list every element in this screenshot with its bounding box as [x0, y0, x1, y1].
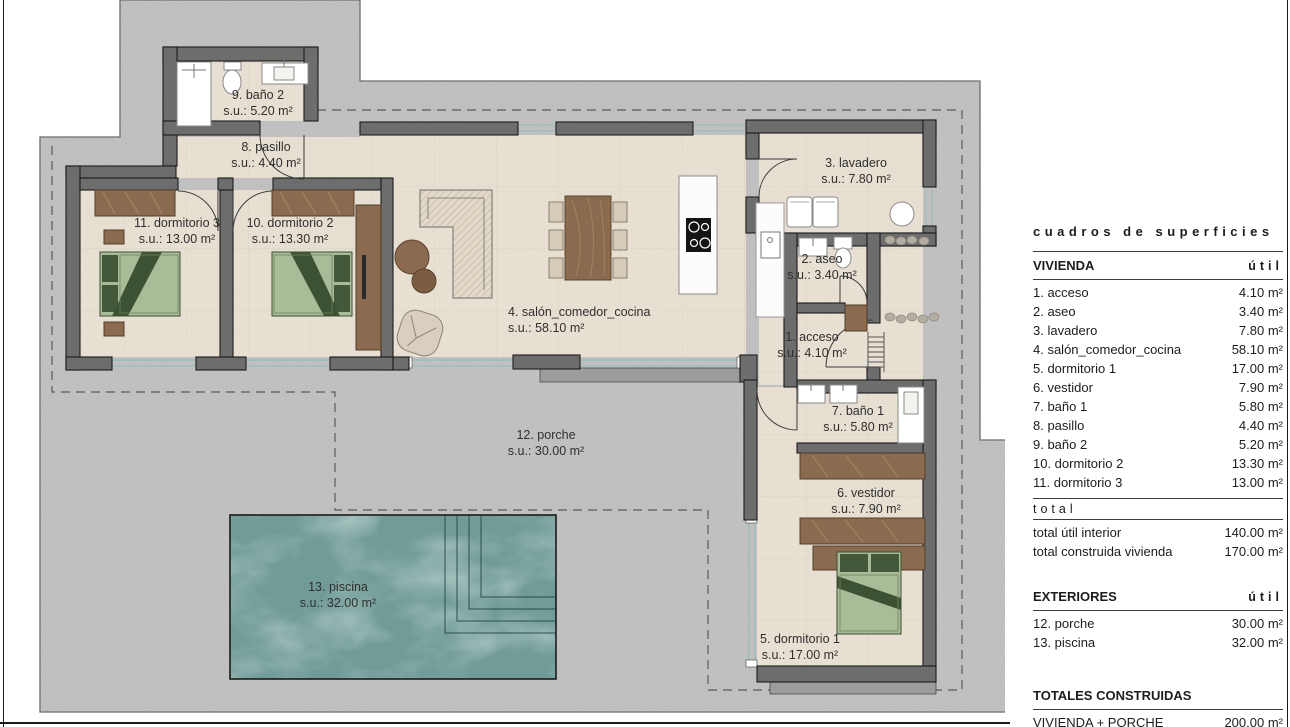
- table-row: 10. dormitorio 213.30 m²: [1033, 456, 1283, 475]
- toilet-tank-icon: [834, 237, 852, 249]
- toilet-tank-icon: [224, 62, 241, 70]
- vivienda-rows: 1. acceso4.10 m² 2. aseo3.40 m² 3. lavad…: [1033, 285, 1283, 494]
- dining-set-icon: [549, 196, 627, 280]
- util-header: útil: [1248, 590, 1283, 604]
- table-row: 7. baño 15.80 m²: [1033, 399, 1283, 418]
- cabinet-icon: [845, 305, 867, 331]
- exteriores-header: EXTERIORES: [1033, 589, 1117, 604]
- table-row: VIVIENDA + PORCHE200.00 m²: [1033, 715, 1283, 727]
- sheet-border-right: [1287, 0, 1288, 727]
- table-row: 12. porche30.00 m²: [1033, 616, 1283, 635]
- table-row: 11. dormitorio 313.00 m²: [1033, 475, 1283, 494]
- floor-plan-drawing: [0, 0, 1005, 727]
- sheet-border-bottom: [0, 722, 1010, 724]
- bed-icon: [272, 252, 352, 316]
- table-row: 8. pasillo4.40 m²: [1033, 418, 1283, 437]
- table-row: total construida vivienda170.00 m²: [1033, 544, 1283, 563]
- table-row: 6. vestidor7.90 m²: [1033, 380, 1283, 399]
- table-row: 2. aseo3.40 m²: [1033, 304, 1283, 323]
- wardrobe-icon: [95, 190, 175, 216]
- util-header: útil: [1248, 259, 1283, 273]
- exteriores-header-row: EXTERIORES útil: [1033, 589, 1283, 611]
- sheet-border-left: [3, 0, 4, 727]
- porch-step: [540, 368, 756, 382]
- floor-plan-sheet: 9. baño 2 s.u.: 5.20 m² 8. pasillo s.u.:…: [0, 0, 1290, 727]
- totales-section: TOTALES CONSTRUIDAS VIVIENDA + PORCHE200…: [1033, 688, 1283, 727]
- bed-icon: [100, 252, 180, 316]
- porch-step-2: [770, 682, 936, 694]
- table-row: 4. salón_comedor_cocina58.10 m²: [1033, 342, 1283, 361]
- vivienda-header: VIVIENDA: [1033, 258, 1094, 273]
- basin-icon: [890, 202, 914, 226]
- divider: [1033, 251, 1283, 252]
- table-row: total útil interior140.00 m²: [1033, 525, 1283, 544]
- pool: [230, 515, 556, 679]
- toilet-icon: [835, 248, 851, 268]
- kitchen-counter-icon: [756, 203, 784, 317]
- kitchen-sink-icon: [761, 232, 780, 258]
- total-header: total: [1033, 498, 1283, 520]
- wardrobe-icon: [356, 205, 381, 350]
- bedroom3-furniture: [95, 190, 180, 336]
- nightstand-icon: [104, 230, 124, 244]
- wardrobe-icon: [272, 190, 354, 216]
- bed-icon: [837, 552, 901, 634]
- wardrobe-icon: [800, 518, 925, 544]
- exteriores-section: EXTERIORES útil 12. porche30.00 m² 13. p…: [1033, 589, 1283, 654]
- table-row: 13. piscina32.00 m²: [1033, 635, 1283, 654]
- panel-title: cuadros de superficies: [1033, 224, 1283, 239]
- kitchen-island-icon: [679, 176, 717, 294]
- table-row: 9. baño 25.20 m²: [1033, 437, 1283, 456]
- nightstand-icon: [104, 322, 124, 336]
- wardrobe-icon: [800, 453, 925, 479]
- table-row: 5. dormitorio 117.00 m²: [1033, 361, 1283, 380]
- toilet-icon: [223, 70, 241, 94]
- vivienda-header-row: VIVIENDA útil: [1033, 258, 1283, 280]
- coffee-table-icon: [412, 269, 436, 293]
- totales-header: TOTALES CONSTRUIDAS: [1033, 688, 1283, 710]
- table-row: 3. lavadero7.80 m²: [1033, 323, 1283, 342]
- table-row: 1. acceso4.10 m²: [1033, 285, 1283, 304]
- surfaces-panel: cuadros de superficies VIVIENDA útil 1. …: [1005, 0, 1283, 727]
- total-rows: total útil interior140.00 m² total const…: [1033, 525, 1283, 563]
